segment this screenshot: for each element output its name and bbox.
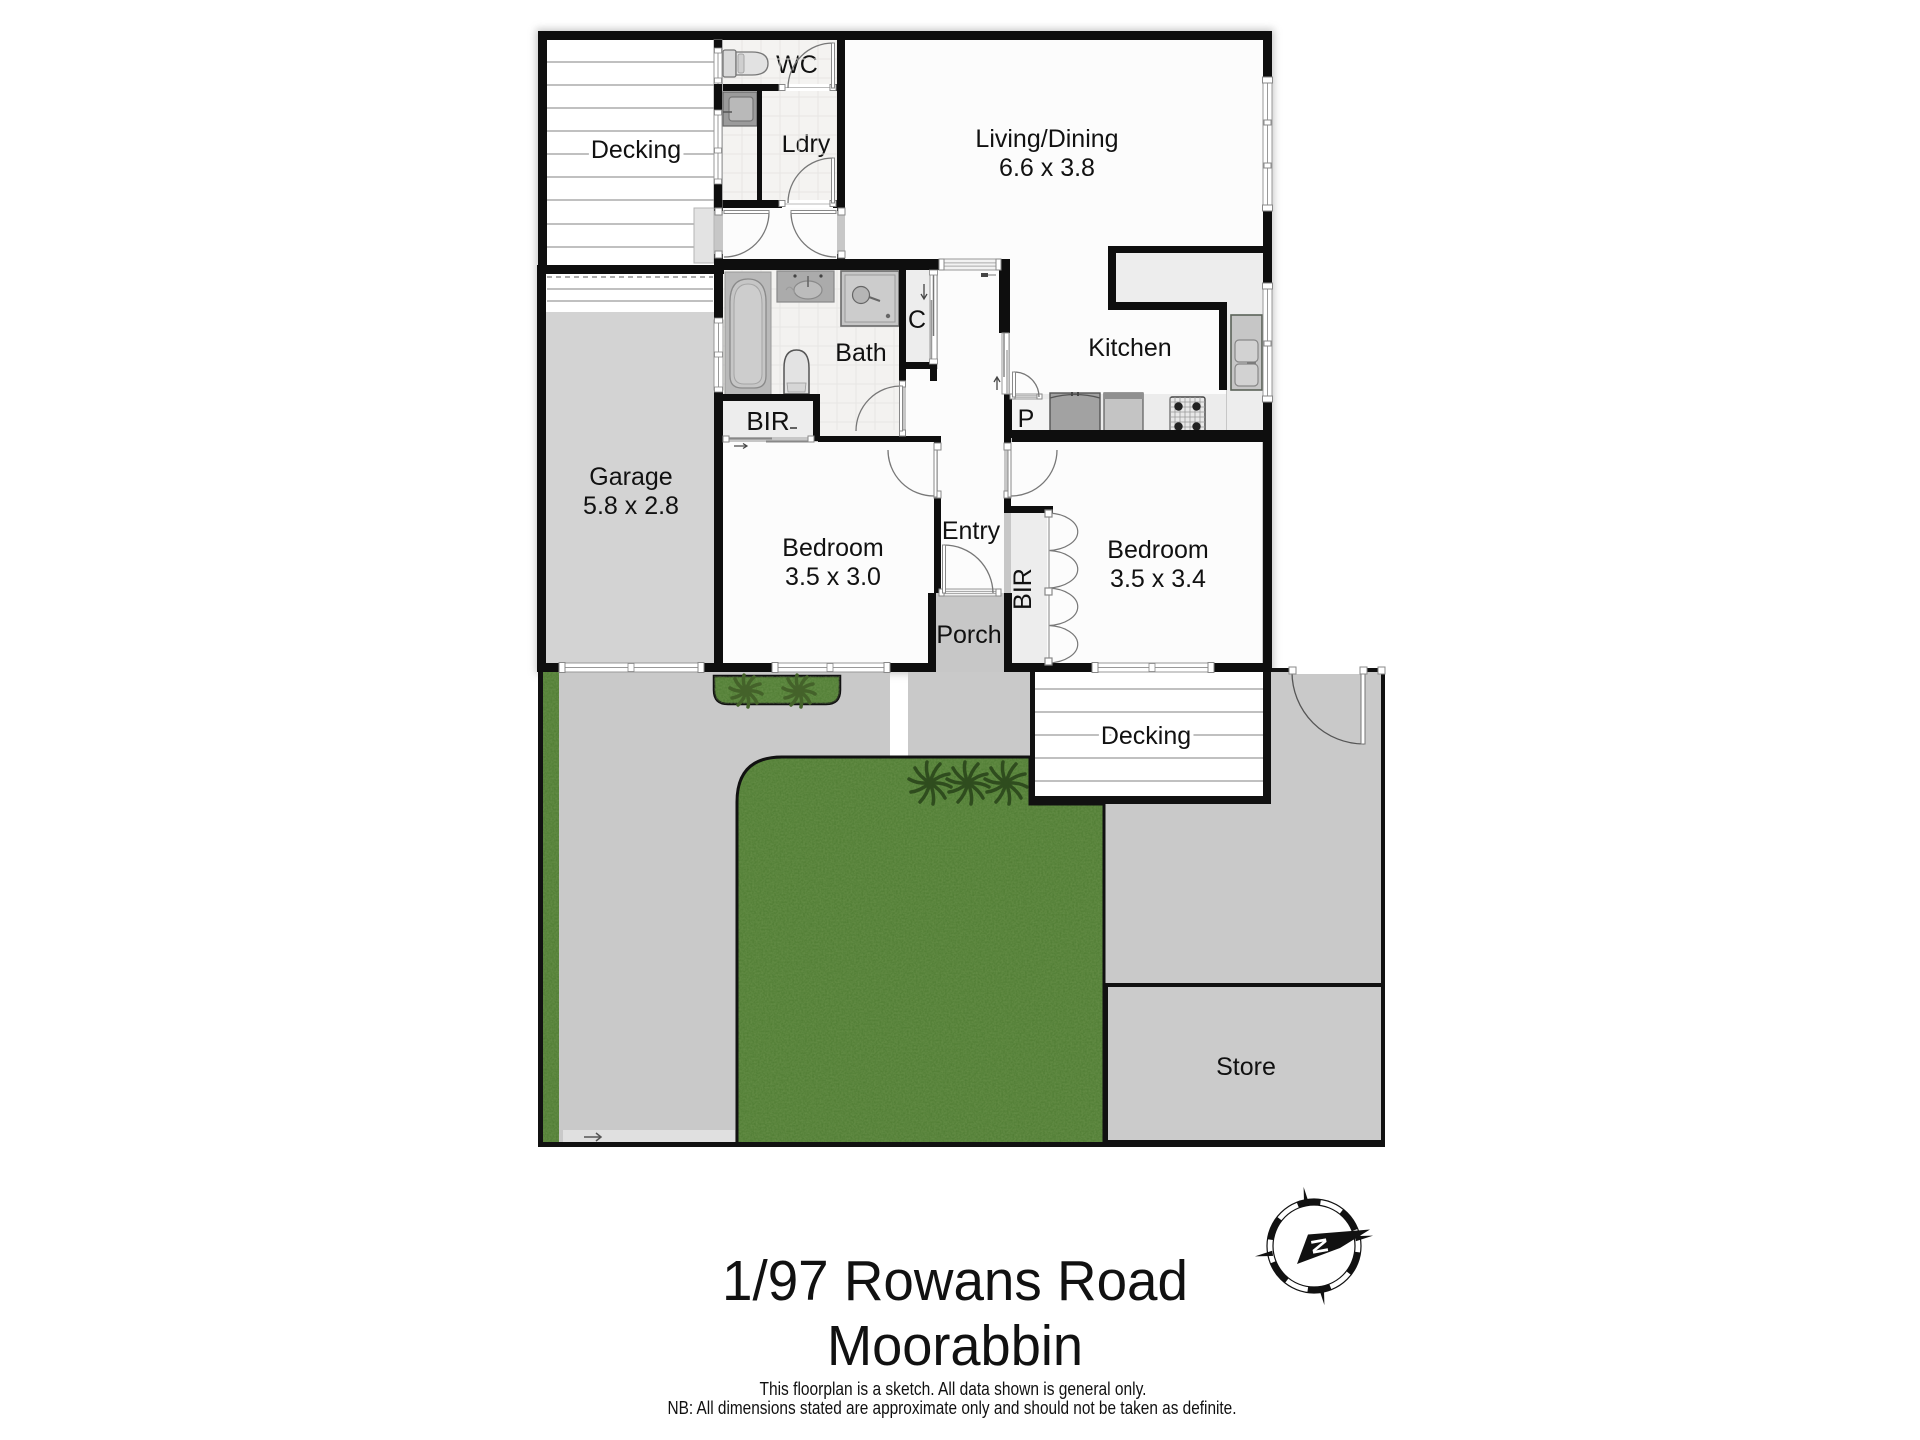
svg-text:5.8 x 2.8: 5.8 x 2.8 xyxy=(583,492,679,520)
svg-text:Moorabbin: Moorabbin xyxy=(827,1314,1083,1378)
svg-text:P: P xyxy=(1018,405,1035,433)
svg-text:BIR: BIR xyxy=(746,406,789,436)
svg-text:Bath: Bath xyxy=(835,339,886,367)
svg-text:3.5 x 3.4: 3.5 x 3.4 xyxy=(1110,565,1206,593)
svg-text:1/97 Rowans Road: 1/97 Rowans Road xyxy=(722,1249,1188,1313)
svg-text:Decking: Decking xyxy=(591,136,681,164)
svg-text:Entry: Entry xyxy=(942,517,1001,545)
svg-text:Garage: Garage xyxy=(589,463,672,491)
svg-text:6.6 x 3.8: 6.6 x 3.8 xyxy=(999,154,1095,182)
svg-text:3.5 x 3.0: 3.5 x 3.0 xyxy=(785,563,881,591)
svg-text:BIR: BIR xyxy=(1009,568,1037,610)
svg-text:Kitchen: Kitchen xyxy=(1088,334,1171,362)
svg-text:Living/Dining: Living/Dining xyxy=(975,125,1118,153)
svg-text:WC: WC xyxy=(776,51,818,79)
svg-text:Decking: Decking xyxy=(1101,722,1191,750)
svg-text:Store: Store xyxy=(1216,1053,1276,1081)
svg-text:Porch: Porch xyxy=(936,621,1001,649)
svg-text:This floorplan is a sketch. Al: This floorplan is a sketch. All data sho… xyxy=(760,1379,1147,1399)
svg-text:Bedroom: Bedroom xyxy=(782,534,883,562)
svg-text:C: C xyxy=(908,306,926,334)
svg-text:Bedroom: Bedroom xyxy=(1107,536,1208,564)
svg-text:NB: All dimensions stated are: NB: All dimensions stated are approximat… xyxy=(668,1398,1237,1418)
